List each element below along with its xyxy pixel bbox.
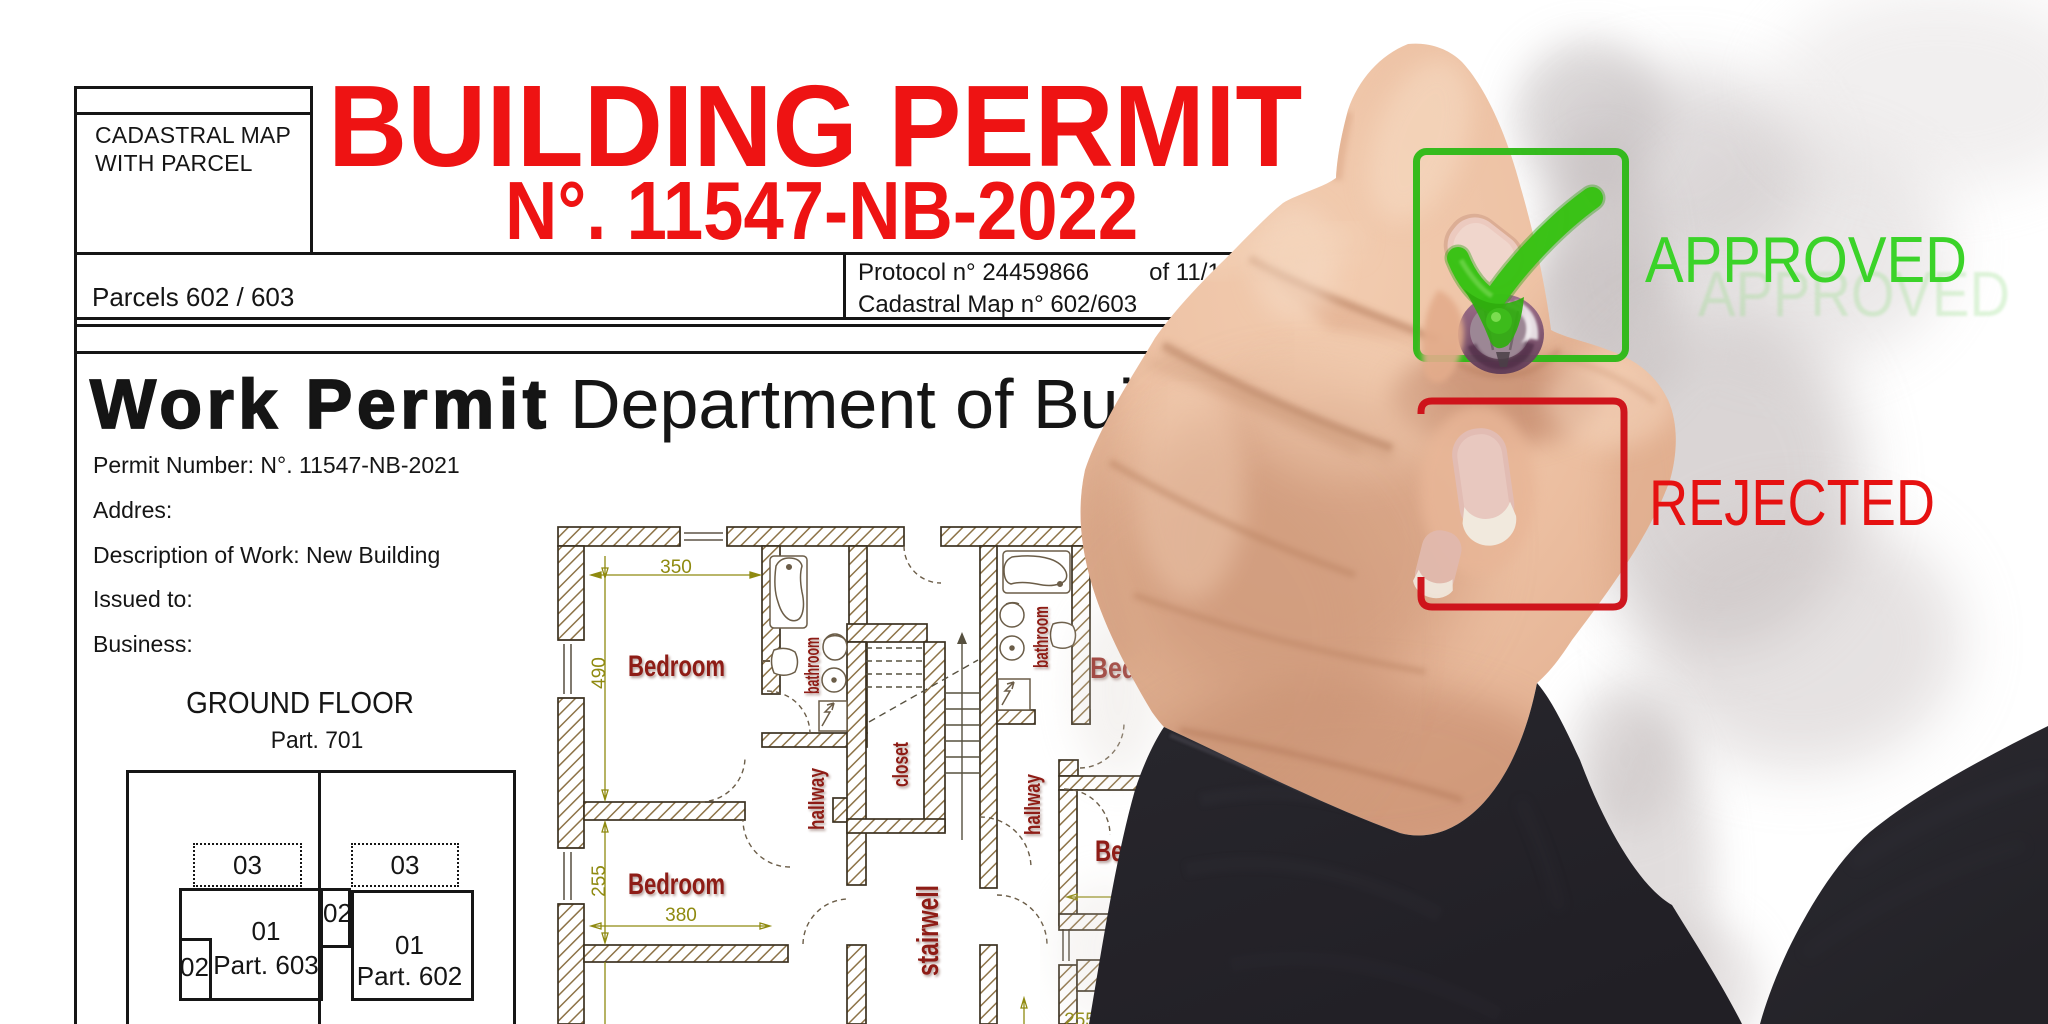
- svg-text:REJECTED: REJECTED: [1649, 466, 1935, 539]
- svg-text:490: 490: [589, 657, 610, 689]
- svg-text:closet: closet: [888, 742, 913, 787]
- svg-text:APPROVED: APPROVED: [1645, 223, 1967, 296]
- svg-text:380: 380: [665, 905, 697, 926]
- svg-text:Bedroom: Bedroom: [628, 868, 725, 901]
- svg-text:350: 350: [660, 557, 692, 578]
- svg-text:hallway: hallway: [804, 767, 829, 830]
- svg-text:255: 255: [589, 865, 610, 897]
- svg-text:Bedroom: Bedroom: [628, 650, 725, 683]
- svg-text:bathroom: bathroom: [802, 637, 824, 694]
- svg-text:stairwell: stairwell: [910, 885, 945, 976]
